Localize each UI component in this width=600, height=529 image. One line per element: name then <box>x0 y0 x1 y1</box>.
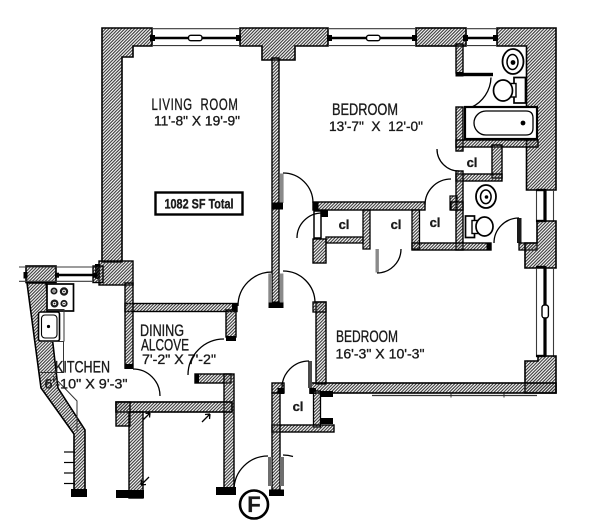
svg-text:F: F <box>247 492 260 517</box>
svg-text:BEDROOM: BEDROOM <box>332 100 398 119</box>
svg-text:11'-8" X 19'-9": 11'-8" X 19'-9" <box>154 113 240 129</box>
svg-text:7'-2" X 7'-2": 7'-2" X 7'-2" <box>142 351 216 367</box>
svg-text:1082 SF Total: 1082 SF Total <box>165 197 234 212</box>
svg-text:LIVING ROOM: LIVING ROOM <box>152 95 239 114</box>
svg-text:13'-7" X 12'-0": 13'-7" X 12'-0" <box>329 118 423 134</box>
svg-text:cl: cl <box>391 217 402 232</box>
svg-text:cl: cl <box>430 215 441 230</box>
svg-text:BEDROOM: BEDROOM <box>336 327 398 346</box>
svg-text:6'-10" X 9'-3": 6'-10" X 9'-3" <box>45 376 128 392</box>
svg-text:cl: cl <box>339 217 350 232</box>
svg-text:cl: cl <box>293 399 304 414</box>
svg-text:KITCHEN: KITCHEN <box>55 359 110 377</box>
svg-text:16'-3" X 10'-3": 16'-3" X 10'-3" <box>336 346 425 362</box>
svg-text:cl: cl <box>467 155 478 170</box>
